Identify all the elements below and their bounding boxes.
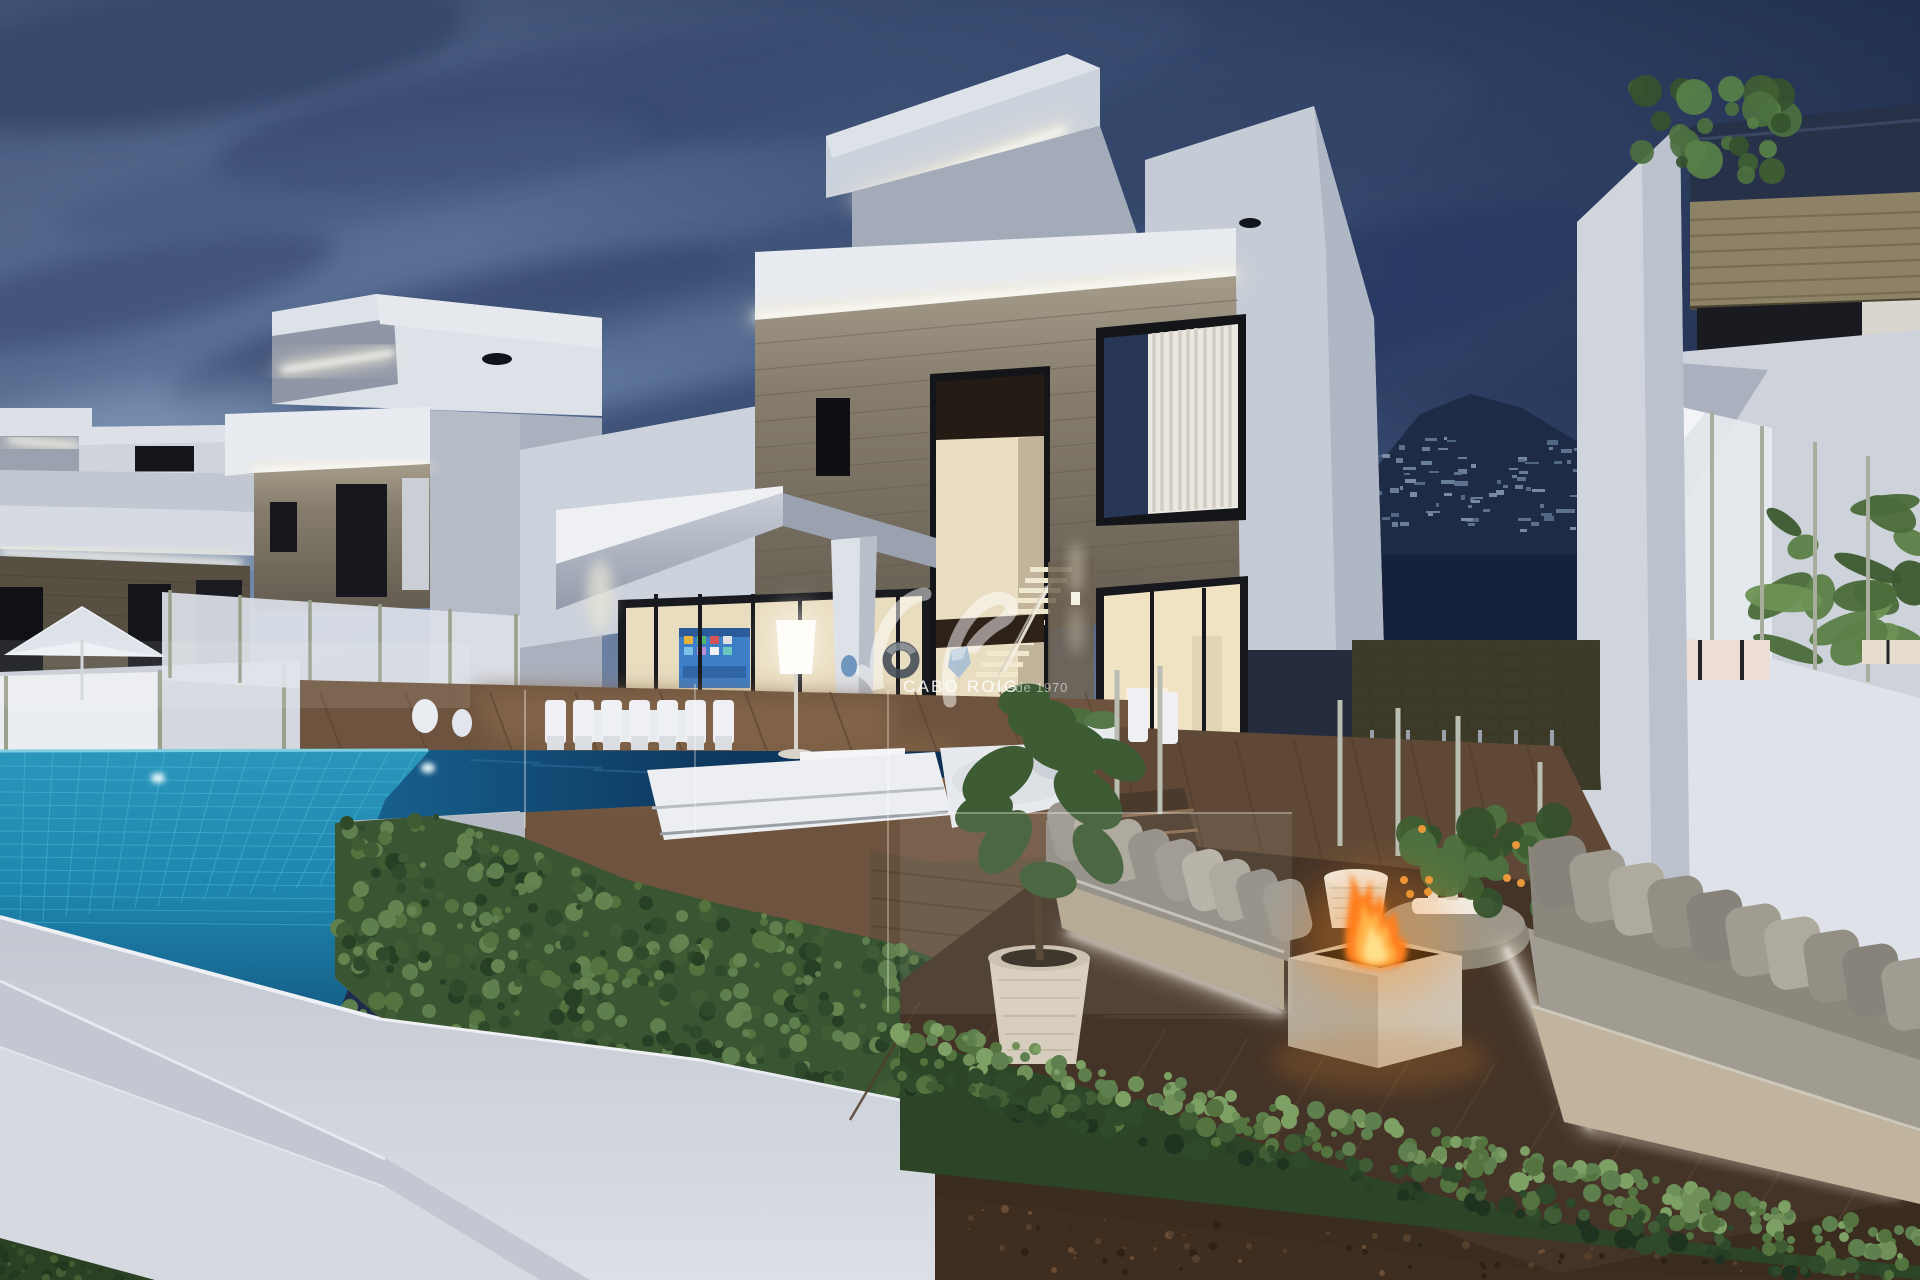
svg-text:Desde 1970: Desde 1970 <box>990 680 1068 695</box>
